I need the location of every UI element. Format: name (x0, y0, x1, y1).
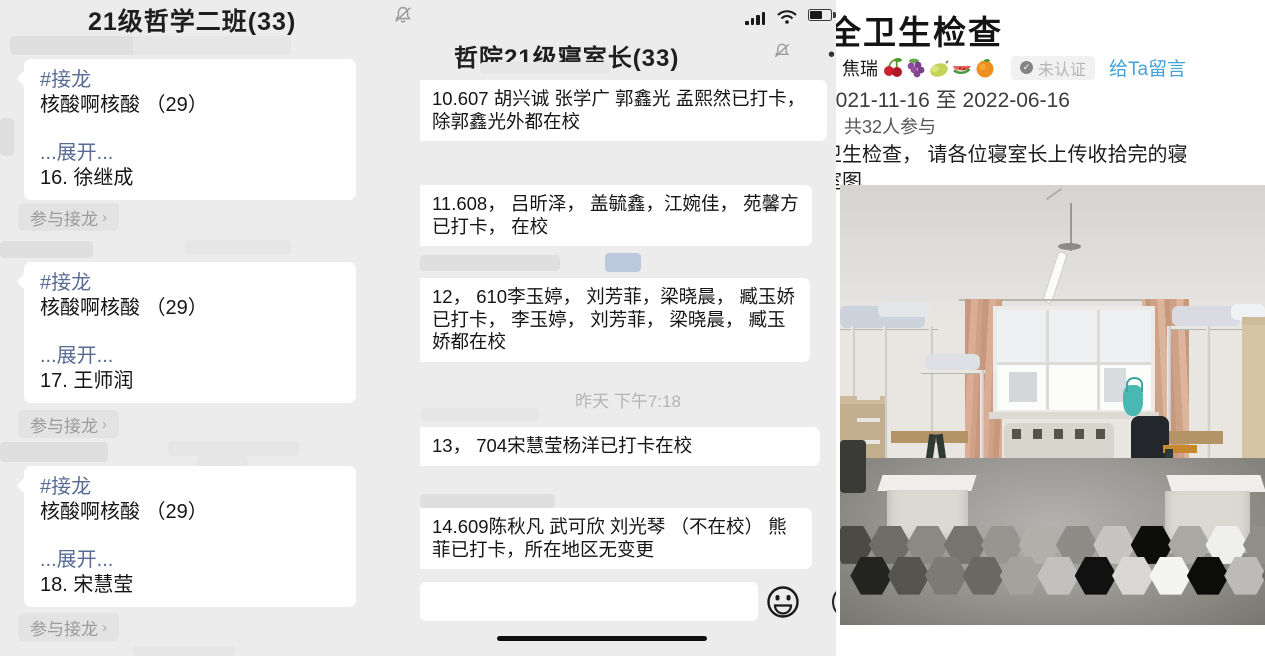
redacted-sender (420, 408, 540, 421)
grapes-icon (905, 57, 927, 79)
expand-link[interactable]: ...展开... (40, 344, 340, 369)
redacted-sender (185, 240, 292, 254)
bubble-tail (17, 71, 33, 87)
checkin-message-bubble[interactable]: 10.607 胡兴诚 张学广 郭鑫光 孟熙然已打卡， 除郭鑫光外都在校 (420, 80, 827, 141)
redacted-avatar (0, 118, 14, 156)
chain-tag-link[interactable]: #接龙 (40, 271, 340, 296)
shield-check-icon: ✓ (1020, 61, 1033, 74)
dorm-room-photo[interactable] (840, 185, 1265, 625)
chevron-right-icon: › (102, 619, 107, 636)
left-chat-title: 21级哲学二班(33) (88, 2, 296, 38)
redacted-text (480, 62, 610, 74)
expand-link[interactable]: ...展开... (40, 548, 340, 573)
chain-tag-link[interactable]: #接龙 (40, 68, 340, 93)
cherries-icon (882, 57, 904, 79)
redacted-sender (420, 255, 560, 271)
chain-entry: 18. 宋慧莹 (40, 573, 340, 598)
unverified-badge: ✓ 未认证 (1011, 56, 1095, 80)
redacted-item (605, 253, 641, 272)
chain-tag-link[interactable]: #接龙 (40, 475, 340, 500)
mute-bell-icon (772, 41, 792, 61)
emoji-smiley-icon[interactable] (765, 584, 801, 620)
join-chain-button[interactable]: 参与接龙 › (18, 613, 119, 641)
left-chat-panel: 21级哲学二班(33) #接龙 核酸啊核酸 （29） ...展开... 16. … (0, 0, 420, 656)
pear-icon (928, 57, 950, 79)
redacted-sender (0, 442, 108, 462)
wifi-icon (776, 8, 798, 26)
author-row: 焦瑞 (842, 54, 1186, 81)
home-indicator (497, 636, 707, 641)
participants-count: 共32人参与 (844, 113, 936, 139)
bubble-tail (17, 274, 33, 290)
mid-chat-panel: 哲院21级寝室长(33) • 10.607 胡兴诚 张学广 郭鑫光 孟熙然已打卡… (420, 0, 836, 656)
detail-title: 全卫生检查 (836, 6, 1265, 54)
redacted-sender (168, 441, 300, 456)
author-name: 焦瑞 (842, 55, 878, 81)
spacer (40, 118, 340, 141)
chevron-right-icon: › (102, 416, 107, 433)
message-input[interactable] (420, 582, 758, 621)
leave-message-link[interactable]: 给Ta留言 (1109, 54, 1186, 81)
checkin-message-bubble[interactable]: 11.608， 吕昕泽， 盖毓鑫，江婉佳， 苑馨方已打卡， 在校 (420, 185, 812, 246)
spacer (40, 321, 340, 344)
screenshot-collage: 21级哲学二班(33) #接龙 核酸啊核酸 （29） ...展开... 16. … (0, 0, 1265, 656)
chain-detail-panel: 全卫生检查 焦瑞 (836, 0, 1265, 656)
join-chain-button[interactable]: 参与接龙 › (18, 203, 119, 231)
checkin-message-bubble[interactable]: 13， 704宋慧莹杨洋已打卡在校 (420, 427, 820, 466)
mute-bell-icon (392, 4, 414, 26)
battery-icon (808, 9, 832, 21)
spacer (40, 525, 340, 548)
menu-dots-icon[interactable]: • (828, 44, 835, 67)
chain-message-bubble[interactable]: #接龙 核酸啊核酸 （29） ...展开... 18. 宋慧莹 (24, 466, 356, 607)
redacted-sender (420, 494, 555, 508)
censor-mosaic (840, 185, 1265, 625)
redacted-sender (10, 36, 135, 55)
chain-entry: 17. 王师润 (40, 369, 340, 394)
redacted-text (132, 646, 236, 656)
redacted-sender (0, 241, 93, 258)
signal-bars-icon (745, 12, 765, 25)
expand-link[interactable]: ...展开... (40, 141, 340, 166)
checkin-message-bubble[interactable]: 14.609陈秋凡 武可欣 刘光琴 （不在校） 熊菲已打卡，所在地区无变更 (420, 508, 812, 569)
chain-title: 核酸啊核酸 （29） (40, 500, 340, 525)
checkin-message-bubble[interactable]: 12， 610李玉婷， 刘芳菲，梁晓晨， 臧玉娇已打卡， 李玉婷， 刘芳菲， 梁… (420, 278, 810, 362)
description-line1: 卫生检查， 请各位寝室长上传收拾完的寝 (836, 142, 1188, 169)
bubble-tail (17, 478, 33, 494)
chain-title: 核酸啊核酸 （29） (40, 93, 340, 118)
chain-entry: 16. 徐继成 (40, 166, 340, 191)
date-range: 2021-11-16 至 2022-06-16 (836, 84, 1070, 114)
join-chain-button[interactable]: 参与接龙 › (18, 410, 119, 438)
tangerine-icon (974, 57, 996, 79)
chain-message-bubble[interactable]: #接龙 核酸啊核酸 （29） ...展开... 16. 徐继成 (24, 59, 356, 200)
chain-title: 核酸啊核酸 （29） (40, 296, 340, 321)
watermelon-icon (951, 57, 973, 79)
redacted-sender (133, 36, 291, 55)
chain-message-bubble[interactable]: #接龙 核酸啊核酸 （29） ...展开... 17. 王师润 (24, 262, 356, 403)
chevron-right-icon: › (102, 209, 107, 226)
